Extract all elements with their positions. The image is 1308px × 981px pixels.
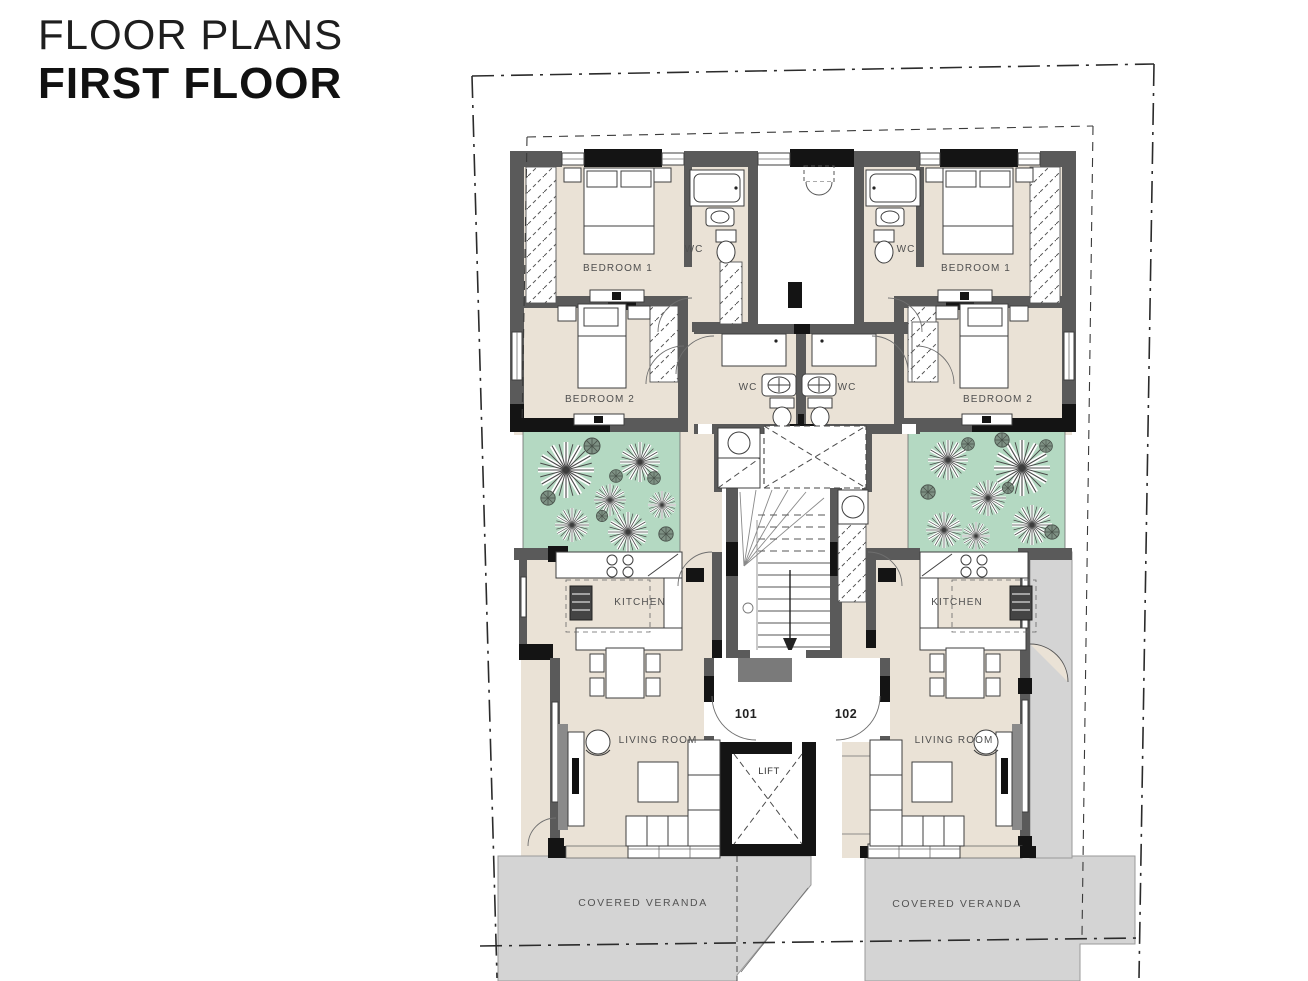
label-wc-top-left: WC [685,244,704,255]
floor-plan-page: FLOOR PLANS FIRST FLOOR [0,0,1308,981]
label-unit-102: 102 [835,707,857,721]
garden-left [523,430,680,552]
label-unit-101: 101 [735,707,757,721]
veranda-left [498,856,811,981]
label-living-left: LIVING ROOM [619,735,698,746]
label-bedroom1-left: BEDROOM 1 [583,263,653,274]
veranda-right [865,856,1135,981]
label-lift: LIFT [758,766,780,777]
label-living-right: LIVING ROOM [915,735,994,746]
garden-right [908,430,1065,552]
label-wc-mid-left: WC [739,382,758,393]
label-kitchen-right: KITCHEN [931,597,983,608]
label-bedroom2-right: BEDROOM 2 [963,394,1033,405]
label-wc-top-right: WC [897,244,916,255]
label-wc-mid-right: WC [838,382,857,393]
label-veranda-right: COVERED VERANDA [892,898,1022,910]
label-bedroom2-left: BEDROOM 2 [565,394,635,405]
label-veranda-left: COVERED VERANDA [578,897,708,909]
label-bedroom1-right: BEDROOM 1 [941,263,1011,274]
label-kitchen-left: KITCHEN [614,597,666,608]
floor-plan-drawing: BEDROOM 1 BEDROOM 1 BEDROOM 2 BEDROOM 2 … [0,0,1308,981]
